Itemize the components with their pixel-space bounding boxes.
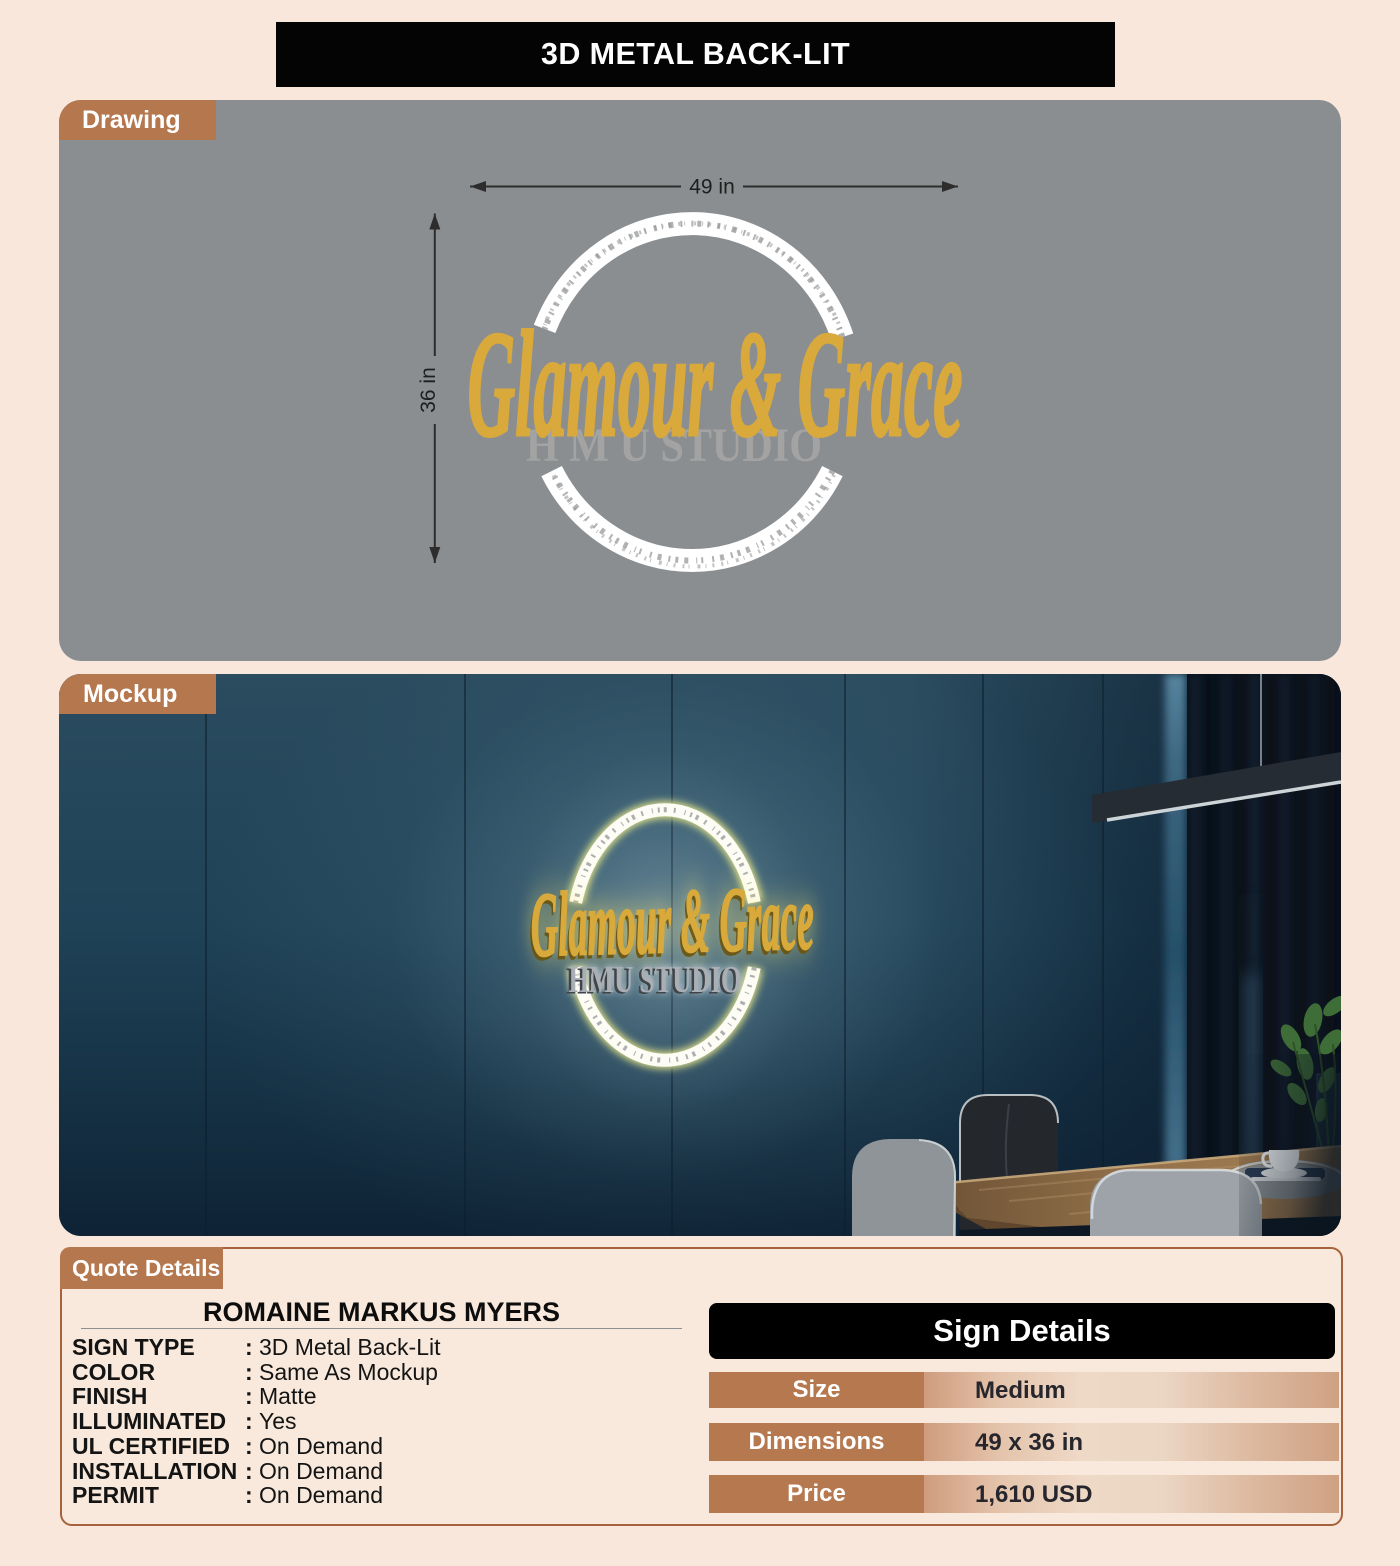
svg-text:Glamour & Grace: Glamour & Grace: [468, 301, 963, 469]
svg-text:HMU STUDIO: HMU STUDIO: [569, 959, 742, 1001]
svg-text:36 in: 36 in: [417, 367, 440, 413]
svg-text:49 in: 49 in: [689, 176, 735, 199]
